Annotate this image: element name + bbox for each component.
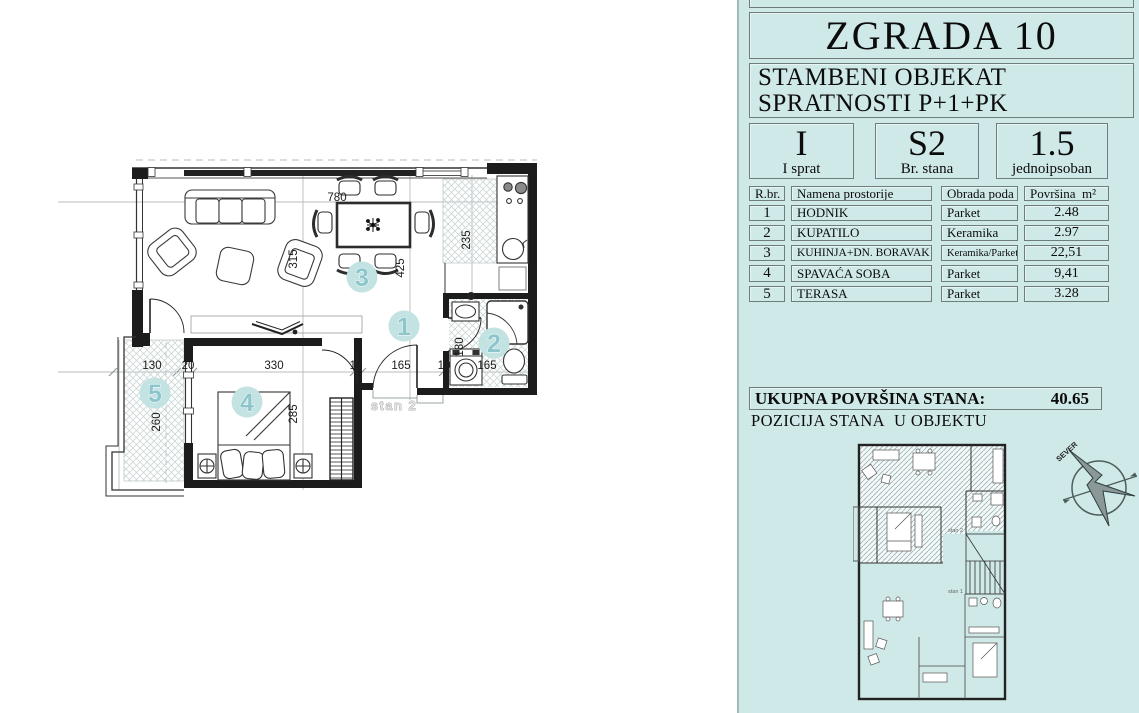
mini-stan1-furniture <box>864 597 1001 682</box>
mini-stan2-label: stan 2 <box>948 528 963 534</box>
dim-315: 315 <box>288 249 300 268</box>
row-area: 3.28 <box>1024 286 1109 302</box>
row-floor: Parket <box>941 265 1018 282</box>
floor-box: I I sprat <box>749 123 854 179</box>
row-floor: Parket <box>941 205 1018 221</box>
nightstand <box>294 454 312 478</box>
row-area: 2.97 <box>1024 225 1109 241</box>
subtitle-line-2: SPRATNOSTI P+1+PK <box>758 91 1133 117</box>
room-count-box: 1.5 jednoipsoban <box>996 123 1108 179</box>
svg-text:1: 1 <box>397 313 411 341</box>
unit-number-label: Br. stana <box>876 161 978 177</box>
stove-burner <box>518 199 523 204</box>
armchair <box>144 224 200 280</box>
pillow <box>262 449 285 479</box>
room-circle-bedroom: 4 <box>232 387 263 418</box>
room-circle-hall: 1 <box>389 311 420 342</box>
pillow <box>242 451 265 480</box>
row-area: 22,51 <box>1024 245 1109 261</box>
mini-position-plan: stan 2 stan 1 <box>853 441 1013 705</box>
row-num: 3 <box>749 245 785 261</box>
dim-330: 330 <box>264 360 283 372</box>
col-header-num: R.br. <box>749 186 785 201</box>
svg-text:3: 3 <box>355 264 369 292</box>
dim-780: 780 <box>327 192 346 204</box>
dim-165a: 165 <box>391 360 410 372</box>
room-count-label: jednoipsoban <box>997 161 1107 177</box>
dim-285: 285 <box>288 404 300 423</box>
info-panel: ZGRADA 10 STAMBENI OBJEKAT SPRATNOSTI P+… <box>737 0 1139 713</box>
mini-stan1-label: stan 1 <box>948 589 963 595</box>
room-count-value: 1.5 <box>997 125 1107 161</box>
main-floor-plan: 3 1 2 4 5 780 235 315 425 180 285 260 13… <box>0 0 737 713</box>
coffee-table <box>215 246 255 286</box>
col-header-floor: Obrada poda <box>941 186 1018 201</box>
svg-text:2: 2 <box>487 330 501 358</box>
chair <box>415 210 434 237</box>
dim-425: 425 <box>395 258 407 277</box>
apartment-datasheet: 3 1 2 4 5 780 235 315 425 180 285 260 13… <box>0 0 1139 713</box>
stove-burner <box>504 183 512 191</box>
row-num: 2 <box>749 225 785 241</box>
row-floor: Parket <box>941 286 1018 302</box>
floor-value: I <box>750 125 853 161</box>
row-num: 4 <box>749 265 785 282</box>
dim-235: 235 <box>461 230 473 249</box>
compass-rose: SEVER <box>1045 434 1139 538</box>
total-area-value: 40.65 <box>1051 389 1089 409</box>
room-circle-bath: 2 <box>479 328 510 359</box>
building-title: ZGRADA 10 <box>825 12 1057 59</box>
total-area-box: UKUPNA POVRŠINA STANA: 40.65 <box>749 387 1102 410</box>
plumbing-riser <box>467 292 475 300</box>
pillow <box>220 448 245 479</box>
chair <box>373 177 398 196</box>
floor-label: I sprat <box>750 161 853 177</box>
bedroom-furniture <box>198 392 353 480</box>
top-box <box>749 0 1134 8</box>
compass-north-label: SEVER <box>1054 439 1079 463</box>
dim-20: 20 <box>182 360 195 372</box>
row-name: TERASA <box>791 286 932 302</box>
unit-number-value: S2 <box>876 125 978 161</box>
row-area: 2.48 <box>1024 205 1109 221</box>
dim-10a: 10 <box>350 360 363 372</box>
row-name: KUHINJA+DN. BORAVAK <box>791 245 932 261</box>
chair <box>314 210 333 237</box>
dim-165b: 165 <box>477 360 496 372</box>
ac-unit <box>252 322 303 335</box>
position-title: POZICIJA STANA U OBJEKTU <box>751 411 987 431</box>
nightstand <box>198 454 216 478</box>
dim-10b: 10 <box>438 360 451 372</box>
stove-burner <box>507 199 512 204</box>
stove-burner <box>515 182 526 193</box>
col-header-name: Namena prostorije <box>791 186 932 201</box>
kitchen-cabinet <box>499 267 526 290</box>
table-plant <box>366 218 380 232</box>
toilet <box>502 349 527 384</box>
row-name: SPAVAĆA SOBA <box>791 265 932 282</box>
svg-text:5: 5 <box>148 380 162 408</box>
row-name: KUPATILO <box>791 225 932 241</box>
row-area: 9,41 <box>1024 265 1109 282</box>
unit-label: stan 2 <box>371 398 418 413</box>
total-area-label: UKUPNA POVRŠINA STANA: <box>755 389 985 409</box>
armchair <box>275 237 325 289</box>
building-subtitle-box: STAMBENI OBJEKAT SPRATNOSTI P+1+PK <box>749 63 1134 118</box>
room-circle-terrace: 5 <box>140 378 171 409</box>
row-floor: Keramika/Parket <box>941 245 1018 261</box>
row-name: HODNIK <box>791 205 932 221</box>
kitchen <box>497 176 528 290</box>
room-circle-living: 3 <box>347 262 378 293</box>
unit-number-box: S2 Br. stana <box>875 123 979 179</box>
kitchen-sink <box>503 239 524 260</box>
subtitle-line-1: STAMBENI OBJEKAT <box>758 65 1133 91</box>
mini-stairwell <box>966 534 1005 594</box>
building-title-box: ZGRADA 10 <box>749 12 1134 59</box>
row-floor: Keramika <box>941 225 1018 241</box>
dim-130: 130 <box>142 360 161 372</box>
dim-180: 180 <box>454 337 466 356</box>
wall-cabinet <box>191 316 362 333</box>
col-header-area: Površina m² <box>1024 186 1109 201</box>
row-num: 5 <box>749 286 785 302</box>
row-num: 1 <box>749 205 785 221</box>
svg-text:4: 4 <box>240 389 254 417</box>
dim-260: 260 <box>151 412 163 431</box>
